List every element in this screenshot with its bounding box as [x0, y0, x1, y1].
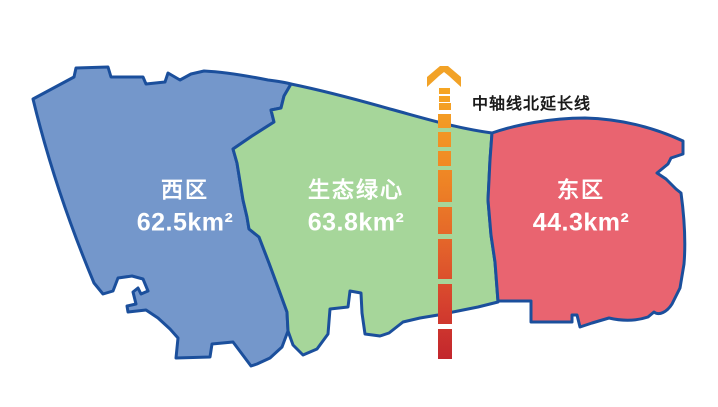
map-svg	[0, 0, 718, 407]
region-east	[488, 118, 685, 327]
map-canvas: 中轴线北延长线 西区 62.5km² 生态绿心 63.8km² 东区 44.3k…	[0, 0, 718, 407]
axis-label: 中轴线北延长线	[472, 90, 591, 114]
up-arrow-icon	[427, 66, 461, 87]
